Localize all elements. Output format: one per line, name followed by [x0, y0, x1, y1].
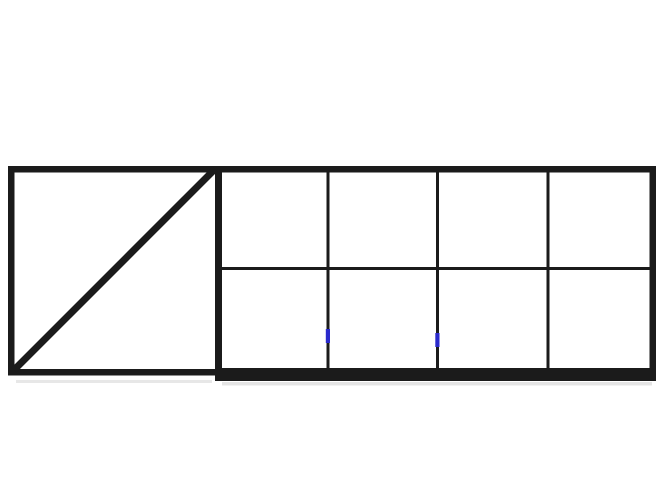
left-stile	[8, 166, 15, 375]
diagonal-brace	[14, 169, 215, 370]
grid-rail-middle	[222, 267, 650, 270]
blue-tick-right-marker	[435, 333, 439, 347]
ground-shadow-right	[222, 382, 652, 386]
blue-tick-left-marker	[326, 329, 330, 343]
bottom-rail-right	[215, 368, 656, 381]
right-stile	[650, 166, 657, 381]
canvas	[0, 0, 665, 495]
grid-mullion-3	[547, 172, 550, 370]
bottom-rail-left	[8, 369, 218, 376]
ground-shadow-left	[16, 380, 212, 383]
center-post	[215, 166, 222, 381]
gate-frame-diagram	[0, 0, 665, 495]
top-rail	[8, 166, 656, 173]
